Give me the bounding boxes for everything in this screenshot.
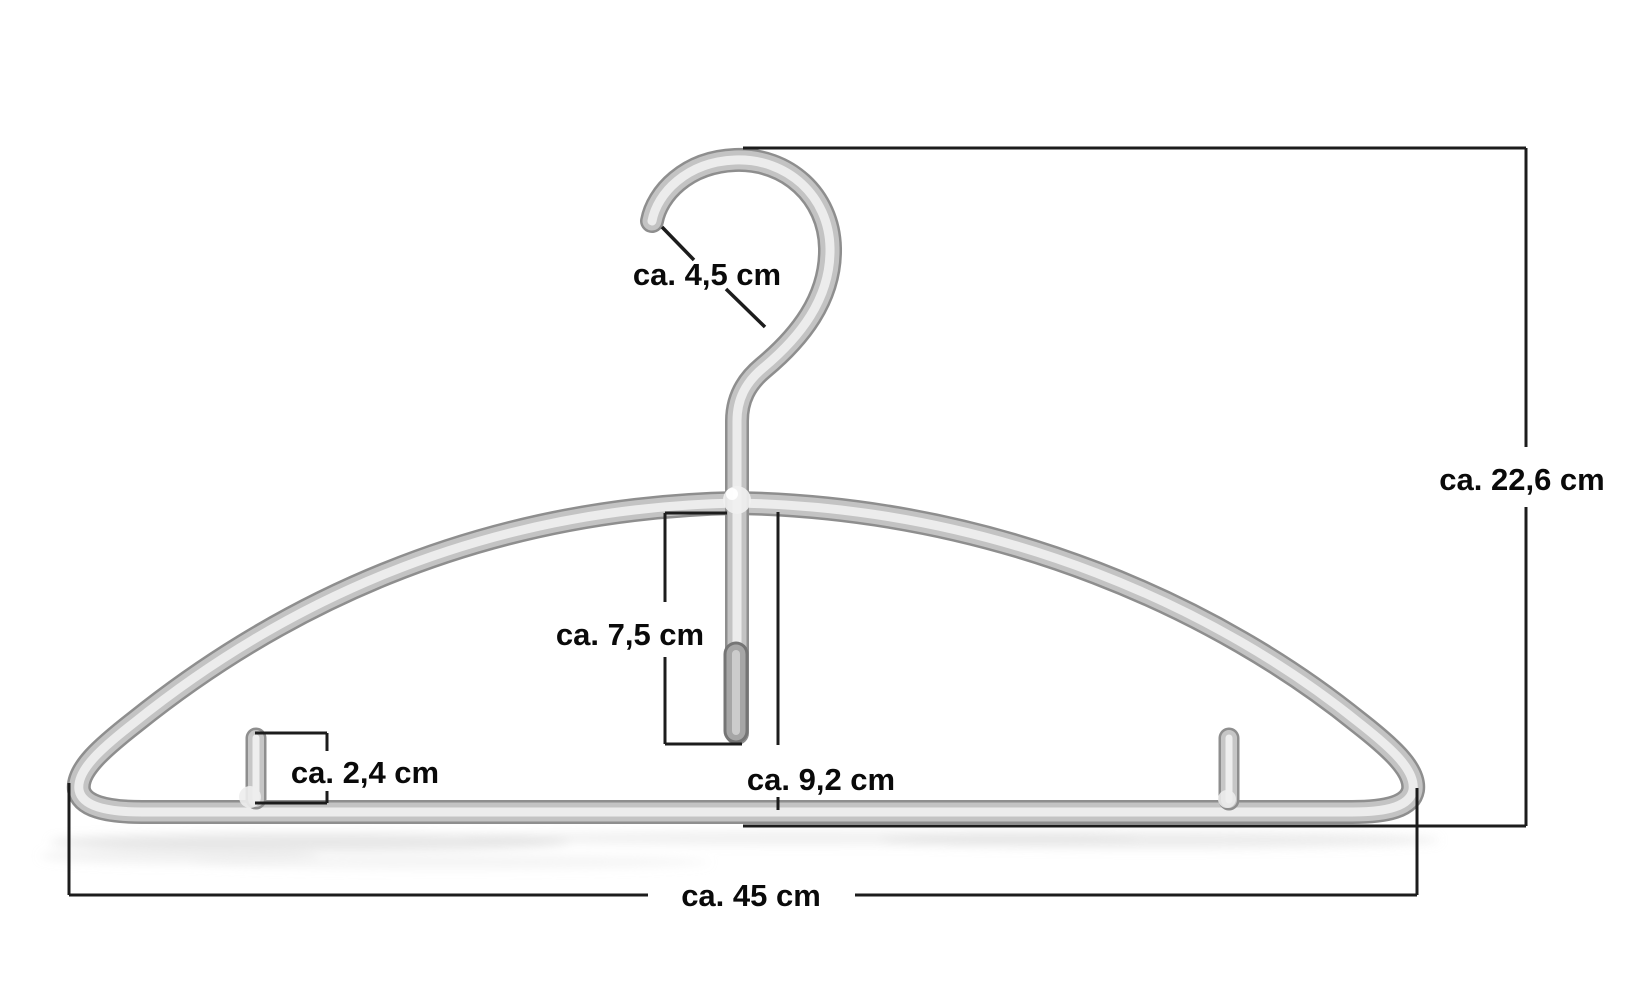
- label-hook-opening: ca. 4,5 cm: [633, 257, 781, 292]
- diagram-canvas: ca. 4,5 cm ca. 22,6 cm ca. 7,5 cm ca. 2,…: [0, 0, 1641, 1001]
- weld-left-peg: [239, 786, 261, 808]
- hanger-dimension-diagram: ca. 4,5 cm ca. 22,6 cm ca. 7,5 cm ca. 2,…: [0, 0, 1641, 1001]
- dim-total-height: [743, 148, 1526, 826]
- label-peg-height: ca. 2,4 cm: [291, 755, 439, 790]
- label-total-height: ca. 22,6 cm: [1439, 462, 1604, 497]
- weld-right-peg: [1218, 790, 1236, 808]
- label-total-width: ca. 45 cm: [681, 878, 821, 913]
- weld-stem-arch-highlight: [726, 488, 738, 500]
- dim-hook-leader-lower: [726, 289, 765, 327]
- floor-shadow: [40, 831, 1440, 869]
- weld-stem-arch: [723, 486, 751, 514]
- label-center-drop: ca. 9,2 cm: [747, 762, 895, 797]
- label-stem-drop: ca. 7,5 cm: [556, 617, 704, 652]
- dim-hook-leader-upper: [662, 227, 694, 260]
